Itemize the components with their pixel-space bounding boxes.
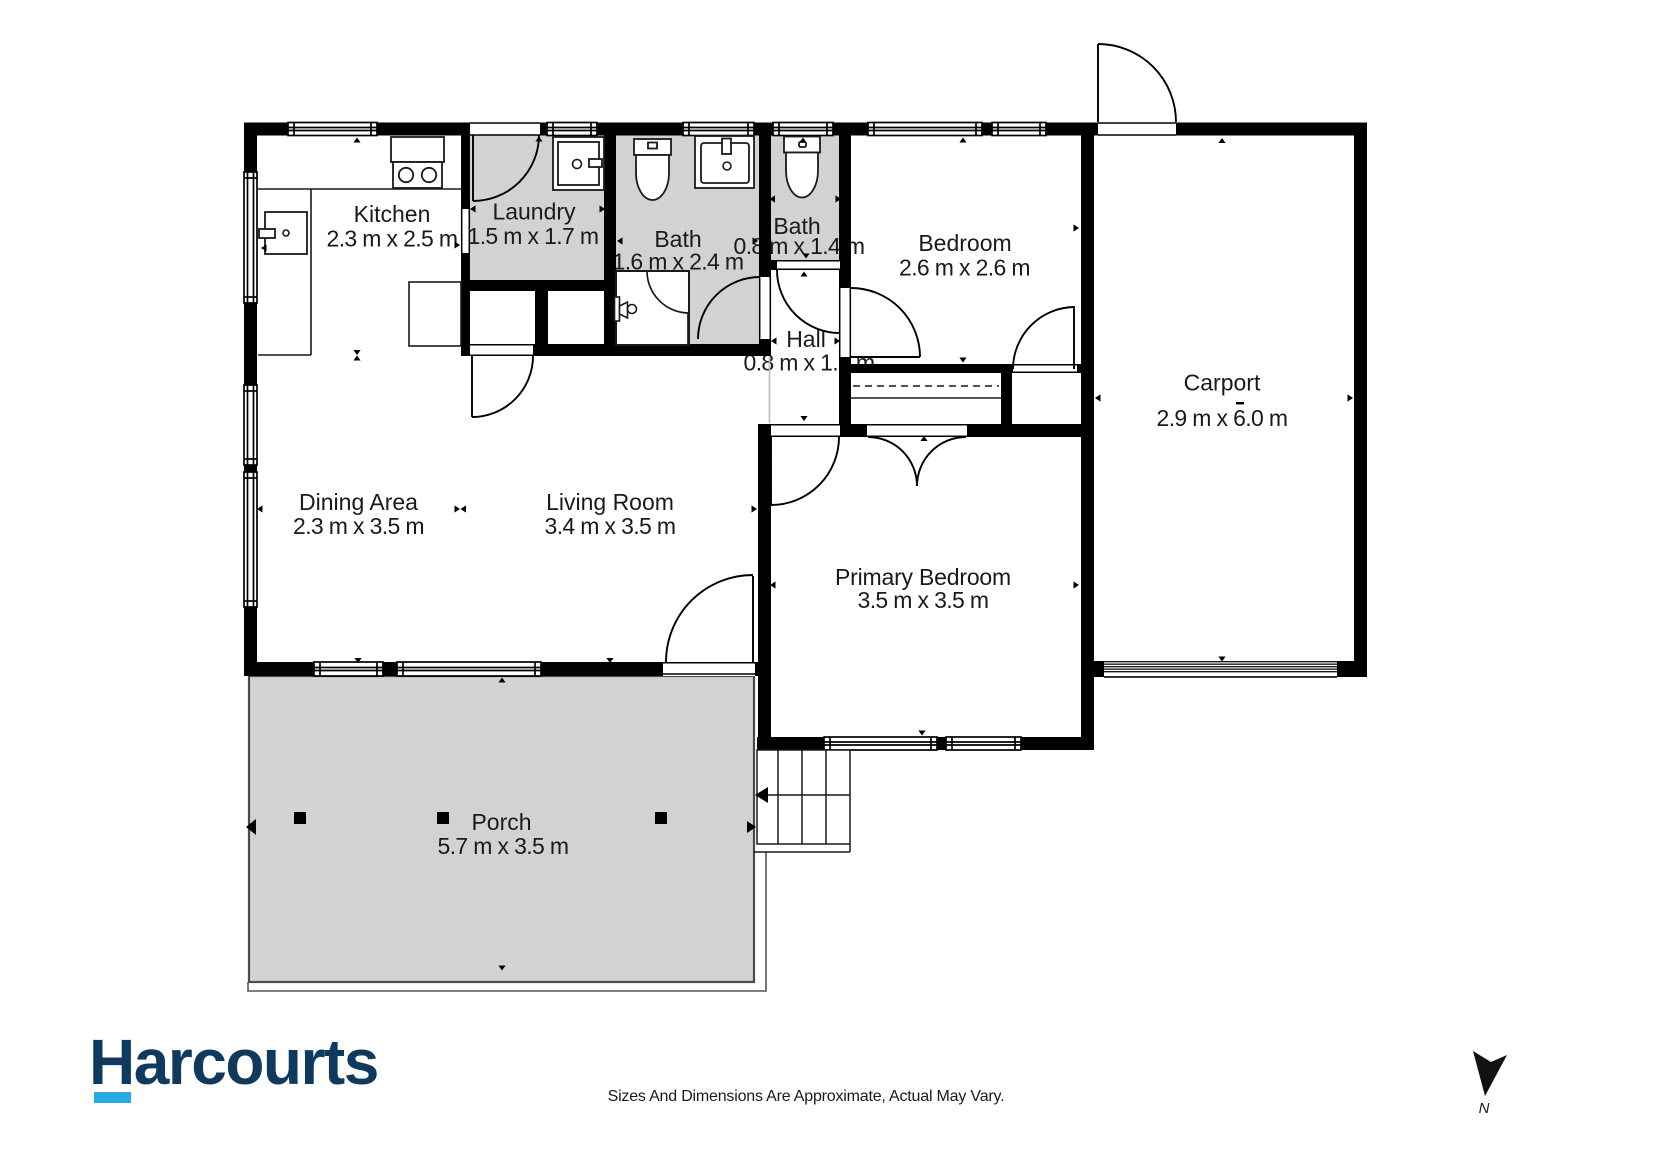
svg-text:Kitchen: Kitchen	[354, 201, 431, 227]
svg-text:5.7 m x 3.5 m: 5.7 m x 3.5 m	[438, 833, 569, 859]
svg-text:Carport: Carport	[1184, 370, 1261, 396]
svg-text:Porch: Porch	[471, 809, 531, 835]
svg-text:1.5 m x 1.7 m: 1.5 m x 1.7 m	[468, 223, 599, 249]
svg-text:Living Room: Living Room	[546, 489, 674, 515]
svg-text:3.4 m x 3.5 m: 3.4 m x 3.5 m	[545, 513, 676, 539]
svg-text:Laundry: Laundry	[492, 199, 576, 225]
svg-text:Sizes And Dimensions Are Appro: Sizes And Dimensions Are Approximate, Ac…	[608, 1088, 1005, 1105]
svg-text:Bedroom: Bedroom	[918, 230, 1011, 256]
svg-text:2.3 m x 2.5 m: 2.3 m x 2.5 m	[327, 226, 458, 252]
svg-text:2.3 m x 3.5 m: 2.3 m x 3.5 m	[293, 513, 424, 539]
svg-text:Dining Area: Dining Area	[299, 489, 418, 515]
svg-text:3.5 m x 3.5 m: 3.5 m x 3.5 m	[858, 587, 989, 613]
svg-text:2.6 m x 2.6 m: 2.6 m x 2.6 m	[899, 255, 1030, 281]
svg-text:Harcourts: Harcourts	[89, 1026, 378, 1098]
svg-text:N: N	[1479, 1100, 1490, 1117]
svg-text:2.9 m x 6.0 m: 2.9 m x 6.0 m	[1157, 405, 1288, 431]
